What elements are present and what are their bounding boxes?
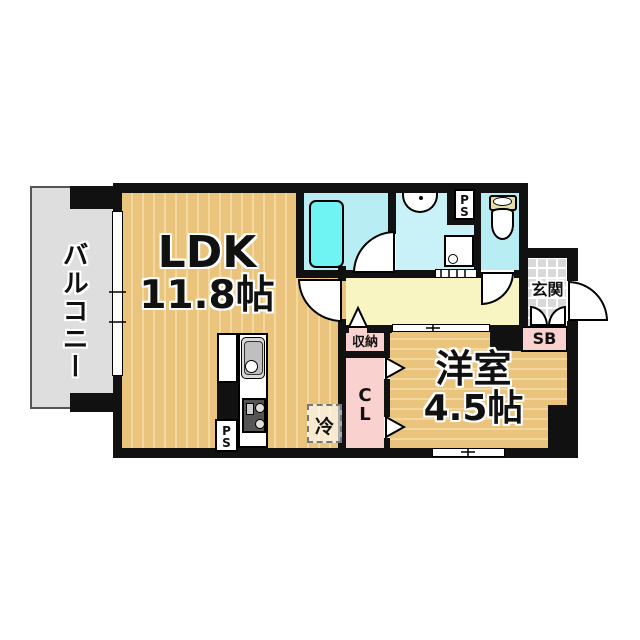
western-room-name: 洋室 — [396, 350, 551, 390]
toilet-tank-basin — [493, 197, 512, 206]
wall-segment — [384, 438, 390, 448]
ldk-name: LDK — [112, 230, 302, 276]
wall-segment — [346, 351, 384, 358]
wall-segment — [519, 183, 528, 258]
wall-segment — [70, 186, 122, 209]
wall-segment — [384, 326, 390, 358]
sink-drain — [245, 360, 258, 373]
toilet-bowl — [491, 208, 514, 240]
storage-label: 収納 — [346, 331, 384, 350]
entrance-label: 玄関 — [527, 282, 568, 299]
refrigerator-label: 冷 — [307, 412, 342, 439]
wall-segment — [388, 193, 396, 234]
washroom-sliding-door — [435, 269, 477, 278]
closet-label: CL — [346, 376, 384, 431]
burner-icon — [255, 403, 265, 413]
bathtub — [309, 200, 344, 268]
pipe-space-kitchen: PS — [215, 419, 238, 452]
western-room-size: 4.5帖 — [396, 390, 551, 428]
kitchen-partition-wall — [217, 383, 238, 421]
shoebox-label: SB — [521, 329, 568, 348]
balcony-label: バルコニー — [45, 218, 100, 403]
western-room-label: 洋室 4.5帖 — [396, 350, 551, 428]
faucet-dot-icon — [419, 196, 423, 200]
floor-plan: PS PS バルコニー LDK 11.8帖 洋室 4.5帖 玄関 収納 CL S… — [0, 0, 640, 640]
front-door-arc — [568, 281, 608, 321]
toilet-fixture — [489, 195, 517, 241]
western-room-window — [432, 448, 505, 457]
wall-segment — [113, 448, 578, 458]
wall-segment — [474, 225, 481, 270]
ldk-label: LDK 11.8帖 — [112, 230, 302, 317]
wall-segment — [567, 258, 578, 281]
wall-segment — [384, 379, 390, 417]
western-room-sliding-door — [392, 324, 490, 332]
kitchen-counter-return — [217, 333, 238, 383]
kitchen-sink — [241, 337, 265, 379]
grill-icon — [246, 403, 254, 415]
ldk-size: 11.8帖 — [112, 276, 302, 317]
pipe-space-toilet: PS — [454, 189, 475, 220]
wall-segment — [519, 248, 578, 258]
stove — [242, 398, 266, 433]
burner-icon — [255, 419, 265, 429]
washing-machine — [444, 235, 474, 267]
drain-icon — [448, 254, 458, 264]
wall-segment — [113, 376, 122, 458]
